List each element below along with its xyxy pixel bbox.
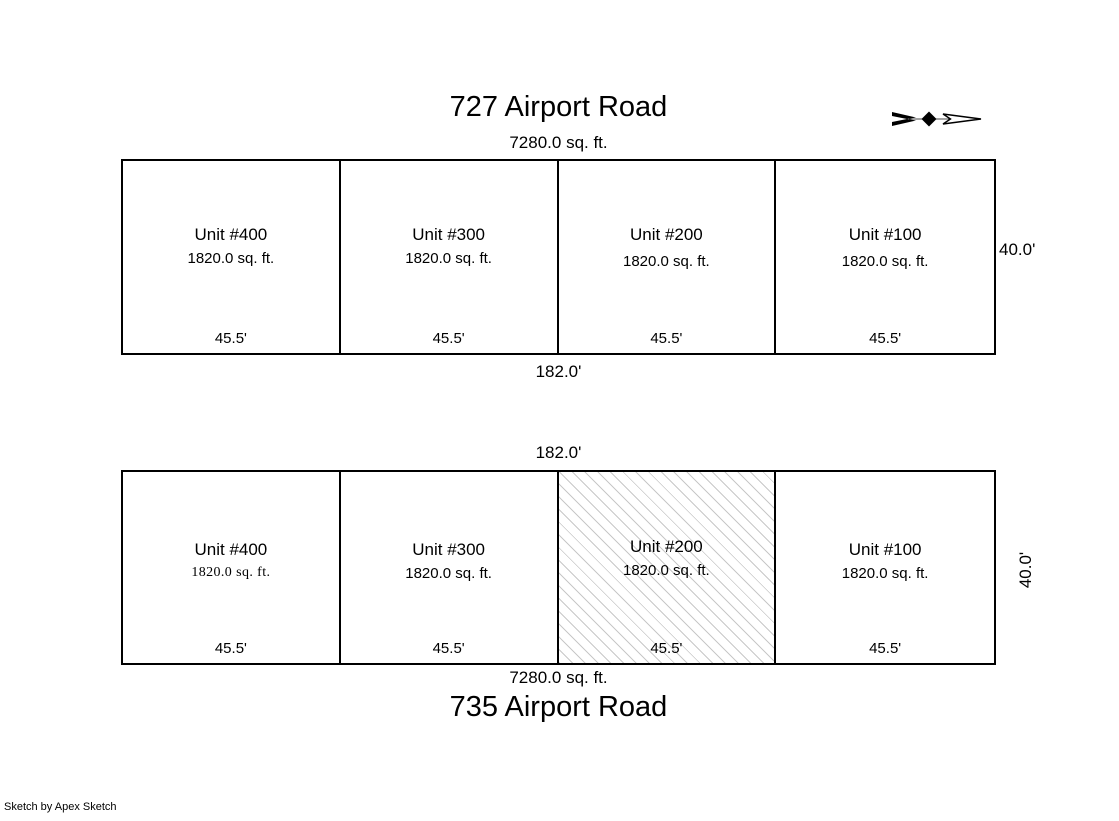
building-735-unit-100: Unit #100 1820.0 sq. ft. 45.5' <box>776 472 994 663</box>
sketch-credit: Sketch by Apex Sketch <box>4 801 117 813</box>
building-727-total-area: 7280.0 sq. ft. <box>121 134 996 153</box>
unit-area: 1820.0 sq. ft. <box>341 250 557 268</box>
unit-label: Unit #200 1820.0 sq. ft. <box>559 225 775 271</box>
unit-frontage-dimension: 45.5' <box>341 640 557 657</box>
building-735-total-area: 7280.0 sq. ft. <box>121 669 996 688</box>
unit-label: Unit #200 1820.0 sq. ft. <box>559 537 775 580</box>
unit-area: 1820.0 sq. ft. <box>559 562 775 580</box>
unit-name: Unit #200 <box>559 537 775 557</box>
building-727-depth-dimension: 40.0' <box>999 241 1035 260</box>
building-727-unit-400: Unit #400 1820.0 sq. ft. 45.5' <box>123 161 341 353</box>
building-727-unit-200: Unit #200 1820.0 sq. ft. 45.5' <box>559 161 777 353</box>
unit-name: Unit #300 <box>341 225 557 245</box>
building-727-title: 727 Airport Road <box>121 92 996 124</box>
building-727-length-dimension: 182.0' <box>121 363 996 382</box>
unit-label: Unit #400 1820.0 sq. ft. <box>123 225 339 268</box>
unit-label: Unit #300 1820.0 sq. ft. <box>341 225 557 268</box>
unit-name: Unit #400 <box>123 540 339 560</box>
unit-name: Unit #200 <box>559 225 775 245</box>
unit-frontage-dimension: 45.5' <box>776 640 994 657</box>
unit-label: Unit #100 1820.0 sq. ft. <box>776 540 994 583</box>
building-735-depth-dimension: 40.0' <box>1016 552 1036 588</box>
unit-label: Unit #300 1820.0 sq. ft. <box>341 540 557 583</box>
unit-label: Unit #400 1820.0 sq. ft. <box>123 540 339 582</box>
unit-area: 1820.0 sq. ft. <box>776 565 994 583</box>
unit-frontage-dimension: 45.5' <box>123 330 339 347</box>
unit-name: Unit #100 <box>776 540 994 560</box>
unit-area: 1820.0 sq. ft. <box>559 253 775 271</box>
building-727-unit-300: Unit #300 1820.0 sq. ft. 45.5' <box>341 161 559 353</box>
unit-area: 1820.0 sq. ft. <box>776 253 994 271</box>
unit-name: Unit #400 <box>123 225 339 245</box>
building-735-length-dimension: 182.0' <box>121 444 996 463</box>
building-735-unit-300: Unit #300 1820.0 sq. ft. 45.5' <box>341 472 559 663</box>
unit-frontage-dimension: 45.5' <box>341 330 557 347</box>
north-arrow-icon <box>891 107 983 131</box>
building-727-unit-100: Unit #100 1820.0 sq. ft. 45.5' <box>776 161 994 353</box>
unit-label: Unit #100 1820.0 sq. ft. <box>776 225 994 271</box>
building-735-unit-200-hatched: Unit #200 1820.0 sq. ft. 45.5' <box>559 472 777 663</box>
unit-frontage-dimension: 45.5' <box>559 330 775 347</box>
building-735-outline: Unit #400 1820.0 sq. ft. 45.5' Unit #300… <box>121 470 996 665</box>
unit-name: Unit #300 <box>341 540 557 560</box>
building-735-unit-400: Unit #400 1820.0 sq. ft. 45.5' <box>123 472 341 663</box>
building-735-title: 735 Airport Road <box>121 692 996 724</box>
unit-area: 1820.0 sq. ft. <box>123 565 339 582</box>
unit-name: Unit #100 <box>776 225 994 245</box>
unit-frontage-dimension: 45.5' <box>776 330 994 347</box>
unit-area: 1820.0 sq. ft. <box>123 250 339 268</box>
unit-frontage-dimension: 45.5' <box>559 640 775 657</box>
unit-area: 1820.0 sq. ft. <box>341 565 557 583</box>
unit-frontage-dimension: 45.5' <box>123 640 339 657</box>
building-727-outline: Unit #400 1820.0 sq. ft. 45.5' Unit #300… <box>121 159 996 355</box>
